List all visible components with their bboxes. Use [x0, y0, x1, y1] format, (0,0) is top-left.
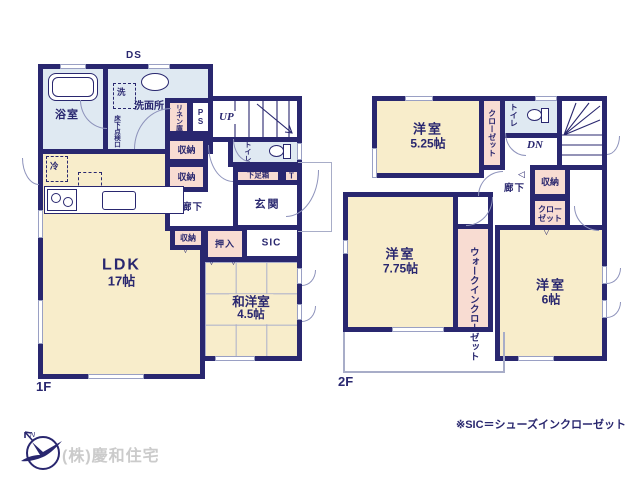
door-swing-mark: ▽	[230, 257, 237, 266]
casement-window-arc	[302, 270, 316, 286]
floor-plan-canvas: LDK 17帖 浴室 洗 洗面所 床下点検口 リネン庫 PS UP トイレ	[0, 0, 640, 480]
storage-2f-label: 収納	[541, 177, 559, 187]
linen-label: リネン庫	[174, 104, 182, 130]
ds-label: DS	[126, 50, 142, 62]
walk-in-closet: ウォークインクローゼット	[453, 224, 493, 332]
floor2-label: 2F	[338, 375, 353, 390]
floor-hatch-label: 床下点検口	[112, 115, 119, 141]
bedroom-6-size: 6帖	[536, 294, 566, 308]
sink-icon	[141, 73, 169, 91]
entrance-label: 玄関	[255, 199, 281, 212]
room-sic: SIC	[241, 225, 302, 261]
door-arc	[22, 158, 39, 185]
wic-label: ウォークインクローゼット	[467, 247, 478, 309]
ps-label: PS	[196, 105, 205, 129]
window	[343, 240, 348, 254]
washitsu-size: 4.5帖	[232, 310, 270, 323]
storage-1f-c-label: 収納	[180, 233, 196, 242]
dn-label: DN	[527, 139, 543, 152]
window	[602, 300, 607, 318]
room-bedroom-6: 洋室 6帖	[495, 225, 607, 361]
fridge-icon: 冷	[46, 156, 68, 182]
window	[297, 304, 302, 320]
room-washitsu: 和洋室 4.5帖	[200, 257, 302, 361]
ldk-size: 17帖	[102, 275, 141, 290]
ldk-name: LDK	[102, 256, 141, 274]
wall-segment	[602, 165, 607, 230]
window	[148, 64, 170, 69]
bedroom-525-name: 洋室	[410, 123, 445, 138]
window	[405, 96, 433, 101]
window	[297, 268, 302, 284]
north-compass-icon: N	[18, 428, 64, 474]
door-arc	[607, 136, 620, 155]
washer-label: 洗	[117, 88, 126, 98]
bedroom-775-label: 洋室 7.75帖	[383, 248, 418, 277]
door-swing-mark: ▽	[208, 257, 215, 266]
fridge-label: 冷	[50, 162, 59, 172]
balcony-outline	[343, 332, 505, 373]
casement-window-arc	[302, 306, 316, 322]
staircase-down-icon	[562, 101, 602, 165]
washitsu-label: 和洋室 4.5帖	[229, 294, 273, 324]
floor1-label: 1F	[36, 380, 51, 395]
room-bedroom-525: 洋室 5.25帖	[372, 96, 484, 178]
window	[297, 143, 302, 160]
bedroom-775-size: 7.75帖	[383, 263, 418, 277]
window	[372, 148, 377, 178]
oshiire-label: 押入	[215, 239, 235, 249]
washing-machine-icon: 洗	[113, 83, 136, 109]
room-toilet-2f: トイレ	[500, 96, 562, 138]
window	[38, 300, 43, 344]
toilet-2f-label: トイレ	[509, 103, 518, 131]
window	[38, 210, 43, 238]
window	[535, 96, 557, 101]
closet-525-label: クローゼット	[487, 104, 496, 162]
staircase-down-room	[557, 96, 607, 170]
window	[215, 356, 255, 361]
ldk-label: LDK 17帖	[102, 256, 141, 289]
bedroom-525-label: 洋室 5.25帖	[410, 123, 445, 152]
staircase-up-room: UP	[208, 96, 302, 142]
sic-label: SIC	[262, 237, 282, 249]
door-swing-mark: ▽	[182, 245, 189, 254]
bedroom-6-name: 洋室	[536, 279, 566, 294]
storage-1f-a-label: 収納	[177, 145, 195, 155]
casement-window-arc	[607, 268, 621, 284]
window	[518, 356, 554, 361]
company-logo-text: (株)慶和住宅	[62, 442, 160, 466]
bedroom-775-name: 洋室	[383, 248, 418, 263]
bath-label: 浴室	[55, 109, 79, 122]
door-arc	[208, 145, 233, 182]
bathtub-icon	[48, 73, 98, 101]
up-label: UP	[217, 111, 236, 124]
bedroom-6-label: 洋室 6帖	[536, 279, 566, 308]
hallway-2f-label: 廊下	[504, 184, 525, 195]
window	[60, 64, 86, 69]
room-bedroom-775: 洋室 7.75帖	[343, 192, 458, 332]
door-swing-mark: ◁	[518, 170, 525, 179]
washitsu-name: 和洋室	[232, 295, 270, 309]
storage-1f-b-label: 収納	[177, 172, 195, 182]
bedroom-525-size: 5.25帖	[410, 138, 445, 152]
stove-icon	[47, 189, 77, 211]
casement-window-arc	[607, 302, 621, 318]
kitchen-sink-icon	[102, 191, 136, 210]
closet-2f-label: クローゼット	[537, 205, 563, 223]
window	[602, 266, 607, 284]
door-swing-mark: ▽	[543, 227, 550, 236]
hallway-1f-label: 廊下	[182, 203, 203, 214]
sic-note: ※SIC＝シューズインクローゼット	[456, 416, 626, 432]
window	[392, 327, 444, 332]
toilet-icon	[525, 108, 549, 124]
toilet-icon	[267, 144, 291, 160]
storage-2f: 収納	[530, 165, 570, 199]
window	[88, 374, 144, 379]
door-arc	[505, 133, 526, 156]
storage-1f-a: 収納	[165, 136, 208, 164]
